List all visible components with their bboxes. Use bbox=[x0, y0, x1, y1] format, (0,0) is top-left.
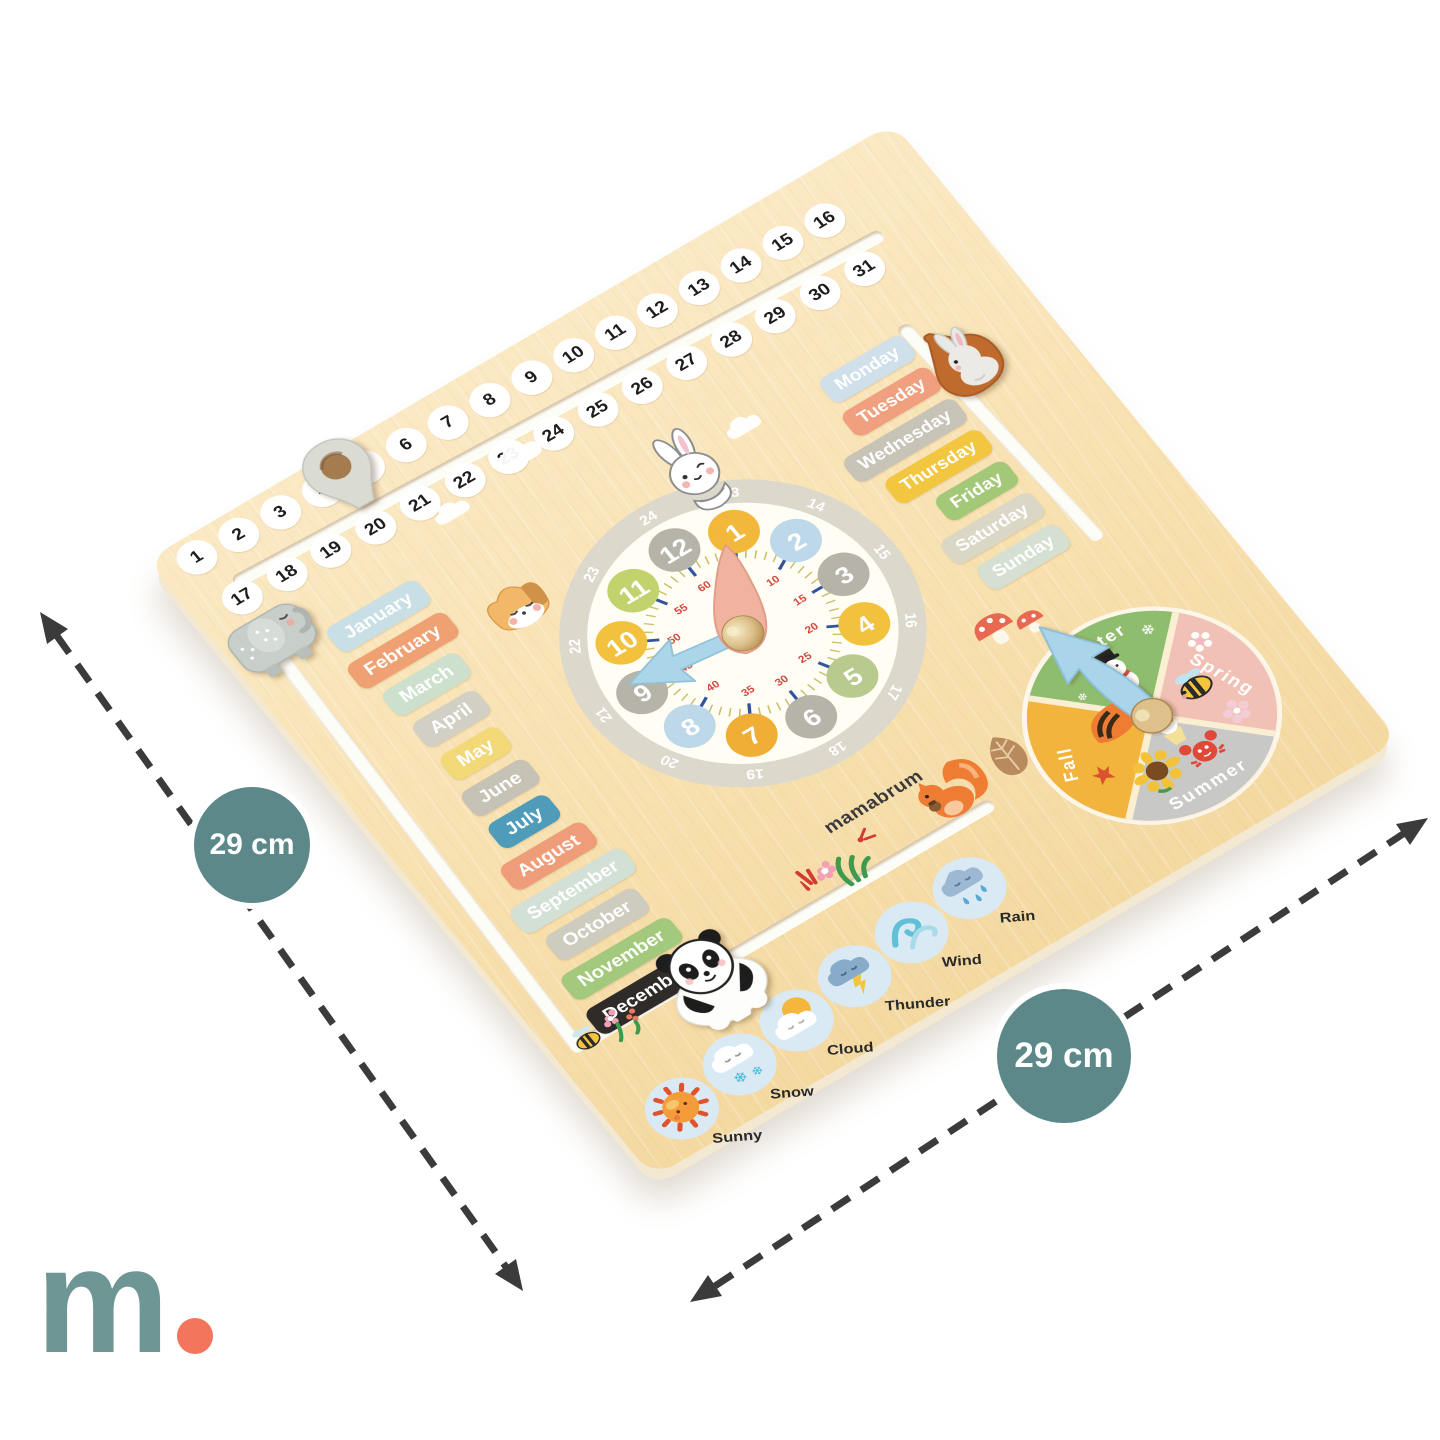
product-photo: 1314151617181920212223245101520253035404… bbox=[0, 0, 1440, 1440]
dimension-arrows bbox=[0, 0, 1440, 1440]
logo-dot-icon bbox=[177, 1318, 213, 1354]
logo-letter: m bbox=[36, 1240, 167, 1360]
mamabrum-logo: m bbox=[36, 1240, 213, 1360]
height-dimension-badge: 29 cm bbox=[194, 787, 310, 903]
width-dimension-badge: 29 cm bbox=[997, 989, 1131, 1123]
